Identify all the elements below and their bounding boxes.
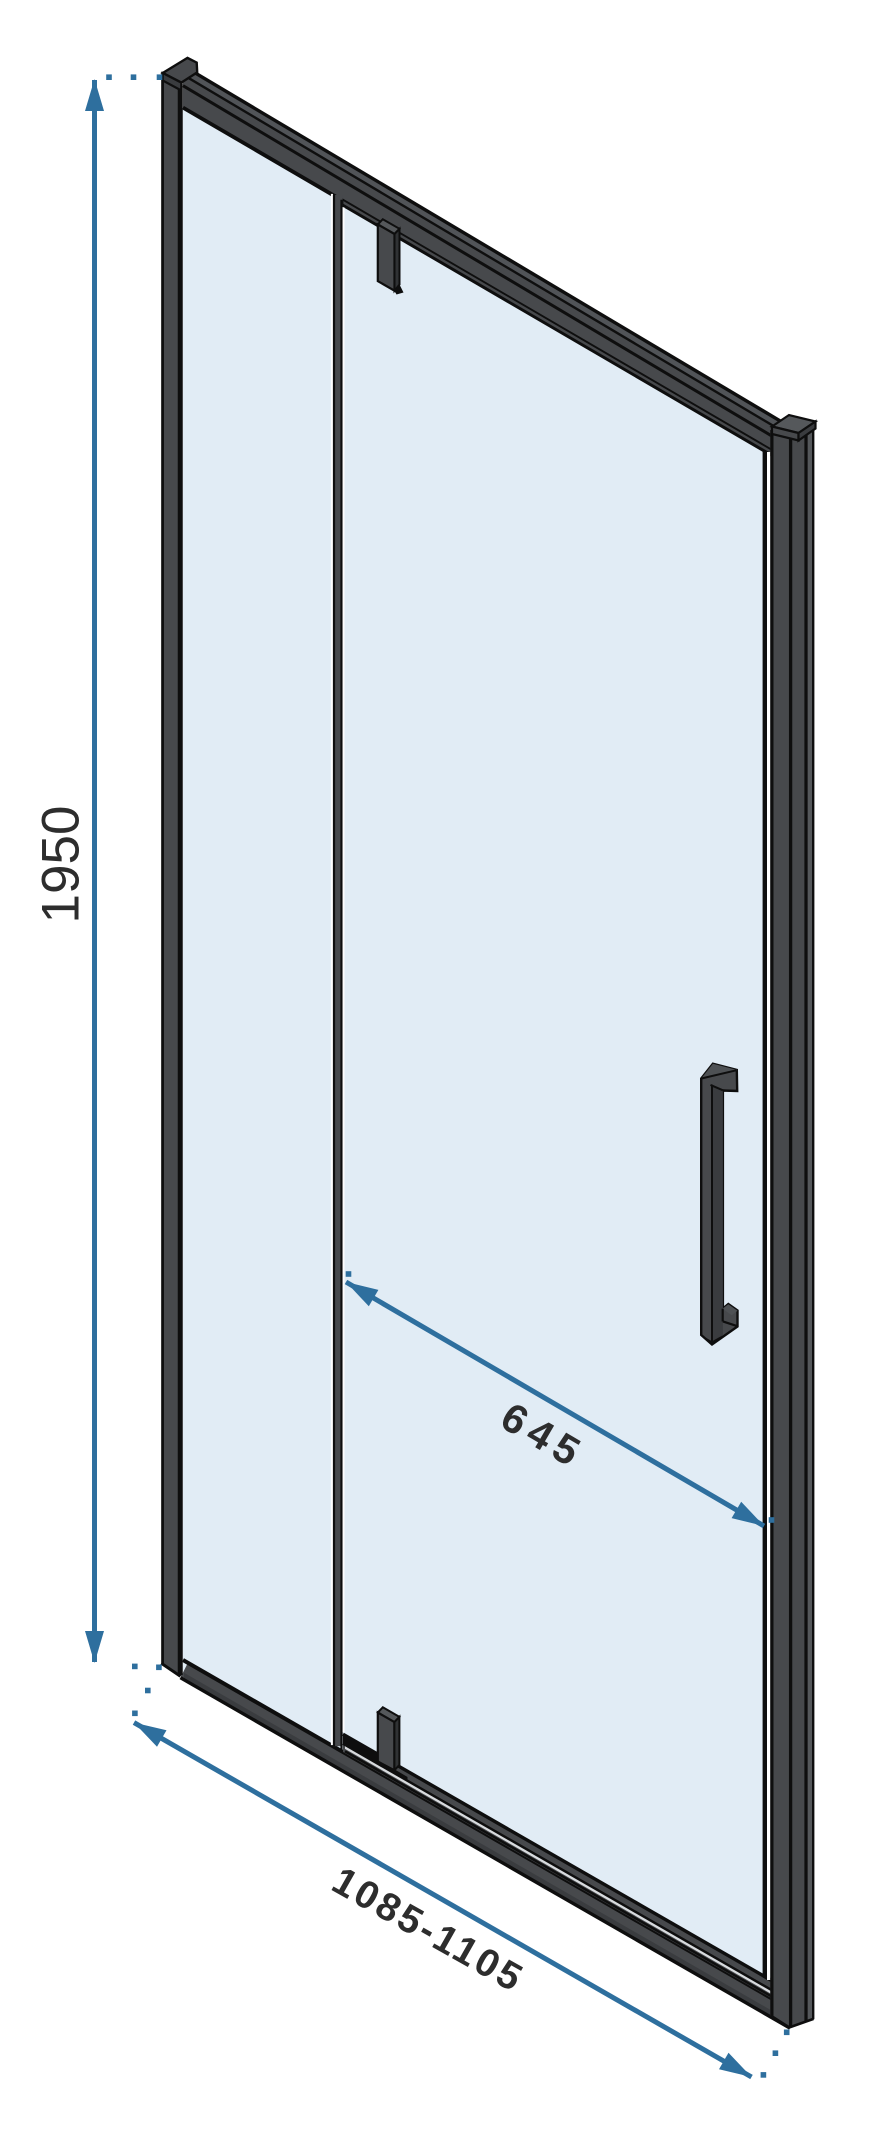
svg-text:1950: 1950	[32, 806, 91, 924]
